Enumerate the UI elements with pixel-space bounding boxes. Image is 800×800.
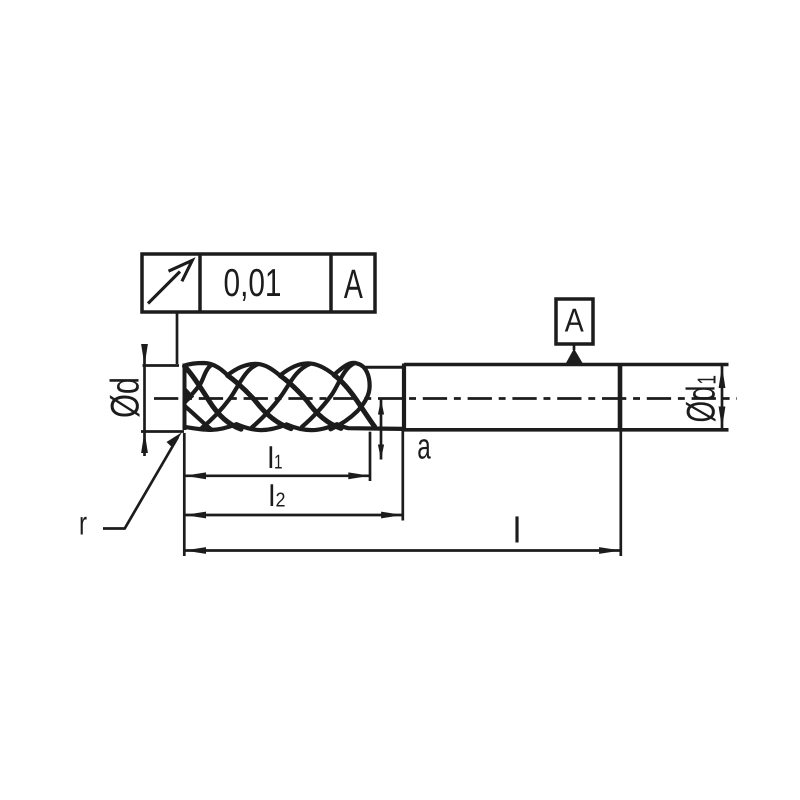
svg-text:A: A	[344, 261, 363, 307]
svg-text:a: a	[417, 425, 431, 466]
svg-text:l: l	[269, 480, 276, 513]
svg-text:1: 1	[274, 452, 283, 474]
svg-text:1: 1	[692, 375, 722, 385]
svg-text:2: 2	[276, 490, 286, 512]
svg-text:0,01: 0,01	[224, 262, 282, 305]
svg-text:A: A	[565, 302, 584, 339]
svg-text:l: l	[513, 510, 521, 551]
svg-text:Ød: Ød	[104, 377, 148, 418]
svg-text:Ød: Ød	[680, 386, 724, 423]
svg-text:r: r	[79, 505, 87, 542]
